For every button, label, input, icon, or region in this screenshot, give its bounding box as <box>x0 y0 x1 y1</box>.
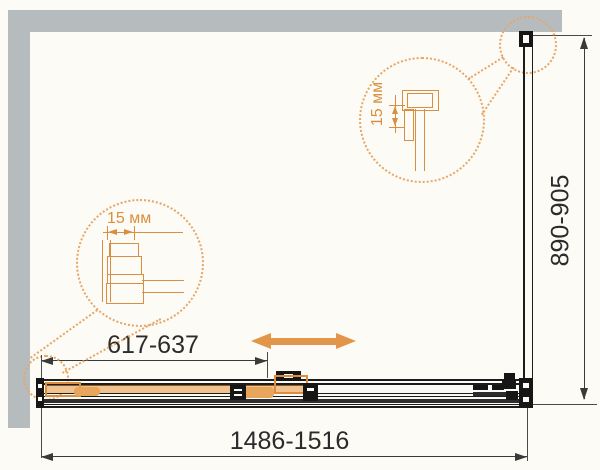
connector-slot <box>234 389 242 391</box>
corner-profile-right <box>519 378 533 408</box>
dimension-arrow-right <box>515 453 527 461</box>
door-assembly <box>36 378 533 408</box>
detail-left-profile-part <box>107 256 142 275</box>
dimension-label-depth: 890-905 <box>549 174 574 266</box>
double-arrow-right-head <box>336 333 356 349</box>
double-arrow-horizontal-icon <box>270 338 336 345</box>
door-connector <box>230 385 246 400</box>
door-fitting <box>473 385 488 390</box>
extension-line-door <box>267 352 268 378</box>
corner-profile-hole <box>523 397 529 402</box>
wall-profile-hole <box>38 397 42 401</box>
detail-right-dim-arrow <box>392 106 398 114</box>
detail-left-profile-part <box>109 243 139 257</box>
callout-leader-line <box>468 56 504 79</box>
wall-profile-top <box>519 31 533 47</box>
detail-right-profile-inner <box>407 93 433 108</box>
dimension-arrow-left <box>41 453 53 461</box>
dimension-line-door-width <box>41 360 267 361</box>
extension-line-right <box>527 408 528 461</box>
dimension-label-depth-wrap: 890-905 <box>546 150 576 290</box>
dimension-arrow-down <box>580 388 588 400</box>
door-connector <box>303 383 318 401</box>
connector-slot <box>234 394 242 396</box>
door-rail <box>43 404 532 406</box>
extension-line-bottom <box>530 404 597 405</box>
door-fitting <box>473 392 507 396</box>
detail-right-label-wrap: 15 мм <box>366 76 390 132</box>
dimension-arrow-up <box>580 37 588 49</box>
door-roller-left <box>74 387 100 396</box>
callout-leader-line <box>481 67 515 115</box>
detail-right-glass <box>415 109 425 171</box>
corner-bracket <box>506 391 518 400</box>
wall-profile-top-hole <box>523 35 529 43</box>
dimension-line-depth <box>584 38 585 399</box>
detail-right-dim-tick <box>389 127 405 128</box>
detail-right-profile-leg <box>404 109 414 141</box>
door-rail <box>36 406 533 408</box>
top-wall <box>8 10 562 32</box>
detail-left-glass-arm <box>142 280 184 293</box>
corner-profile-hole <box>523 383 529 388</box>
door-roller-middle <box>242 387 274 398</box>
detail-left-dim-arrow <box>124 229 133 235</box>
corner-bracket <box>504 373 515 380</box>
door-bottom-rail <box>43 399 532 403</box>
connector-slot <box>307 388 314 391</box>
detail-left-profile-part <box>106 283 144 304</box>
wall-profile-hole <box>38 384 42 388</box>
detail-right-dim-arrow <box>392 118 398 126</box>
wall-profile-left <box>36 378 44 408</box>
detail-left-dim-tick <box>134 226 135 240</box>
door-rail <box>43 396 532 398</box>
detail-left-dim-arrow <box>108 229 117 235</box>
dimension-arrow-right <box>255 357 267 365</box>
dimension-label-overall-width: 1486-1516 <box>222 429 357 454</box>
dimension-line-overall-width <box>41 456 527 457</box>
fixed-side-panel-glass <box>523 44 533 385</box>
technical-drawing-canvas: 890-905 <box>0 0 600 470</box>
double-arrow-left-head <box>251 333 271 349</box>
detail-left-label: 15 мм <box>107 211 151 227</box>
detail-right-label: 15 мм <box>370 82 386 126</box>
corner-bracket <box>502 380 516 389</box>
